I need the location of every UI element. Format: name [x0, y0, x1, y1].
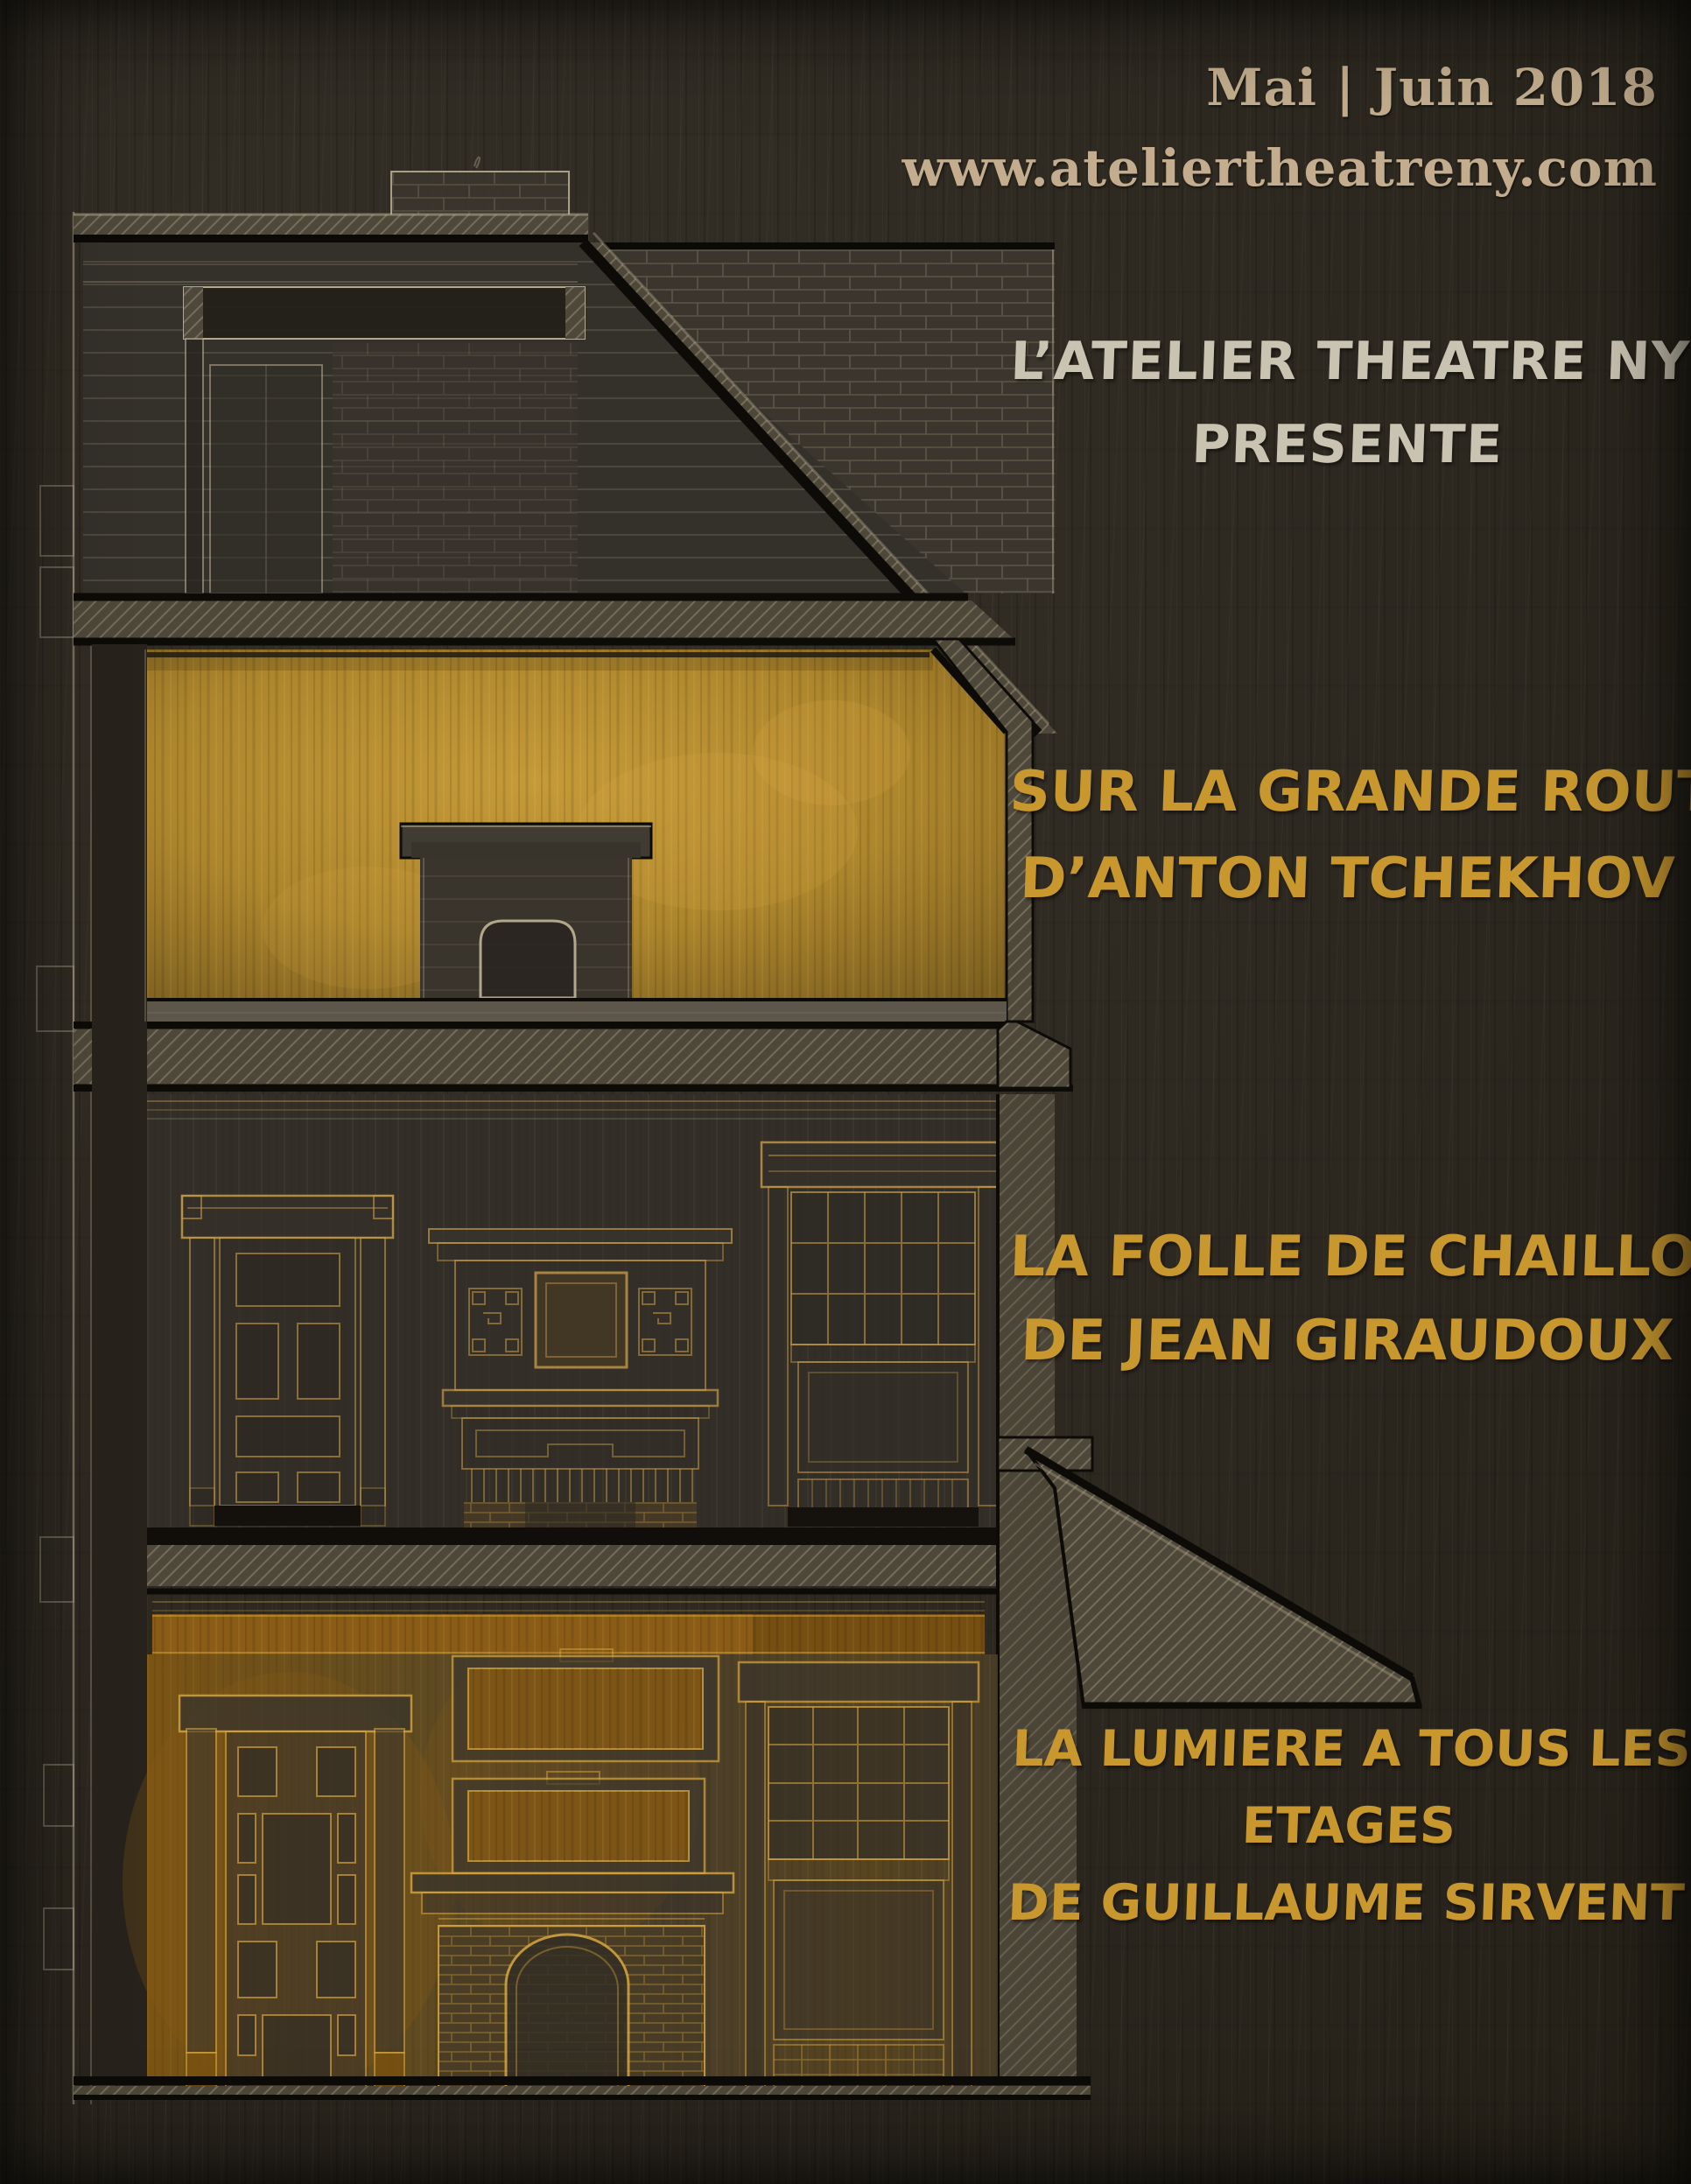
arched-fireplace: [411, 1873, 733, 2094]
theatre-poster: Mai | Juin 2018 www.ateliertheatreny.com…: [0, 0, 1691, 2184]
show-title-line: SUR LA GRANDE ROUTE: [1008, 749, 1691, 836]
second-floor-glowing-room: [92, 639, 1033, 1022]
ground-floor-room: [74, 1591, 1091, 2097]
issue-date: Mai | Juin 2018: [902, 47, 1658, 128]
masthead: Mai | Juin 2018 www.ateliertheatreny.com: [902, 47, 1658, 208]
show-title-line: LA FOLLE DE CHAILLOT: [1008, 1215, 1691, 1299]
roof-chimney-stub: [391, 158, 569, 217]
show-author-line: DE GUILLAUME SIRVENT: [1004, 1864, 1687, 1942]
presenter-line: PRESENTE: [1006, 404, 1689, 487]
glazed-door: [761, 1142, 1005, 1527]
attic-floor-slab: [74, 597, 1015, 642]
ornate-paneled-door: [179, 1696, 411, 2094]
show-author-line: DE JEAN GIRAUDOUX: [1006, 1299, 1689, 1383]
presenter-line: L’ATELIER THEATRE NY: [1008, 320, 1691, 404]
attic-storey: [74, 158, 1057, 734]
show-title-la-lumiere-a-tous-les-etages: LA LUMIERE A TOUS LES ETAGES DE GUILLAUM…: [1004, 1710, 1691, 1942]
paneled-door: [182, 1196, 393, 1526]
website-url: www.ateliertheatreny.com: [902, 128, 1658, 208]
room-chimney-breast: [401, 824, 651, 998]
show-title-sur-la-grande-route: SUR LA GRANDE ROUTE D’ANTON TCHEKHOV: [1006, 749, 1691, 923]
show-author-line: D’ANTON TCHEKHOV: [1006, 836, 1689, 923]
show-title-line: ETAGES: [1007, 1787, 1690, 1864]
show-title-line: LA LUMIERE A TOUS LES: [1010, 1710, 1691, 1787]
show-title-la-folle-de-chaillot: LA FOLLE DE CHAILLOT DE JEAN GIRAUDOUX: [1006, 1215, 1691, 1383]
ground-line: [74, 2081, 1091, 2097]
fireplace-mantel: [429, 1229, 732, 1542]
overmantel-panels: [453, 1649, 719, 1873]
presenter-block: L’ATELIER THEATRE NY PRESENTE: [1006, 320, 1691, 487]
